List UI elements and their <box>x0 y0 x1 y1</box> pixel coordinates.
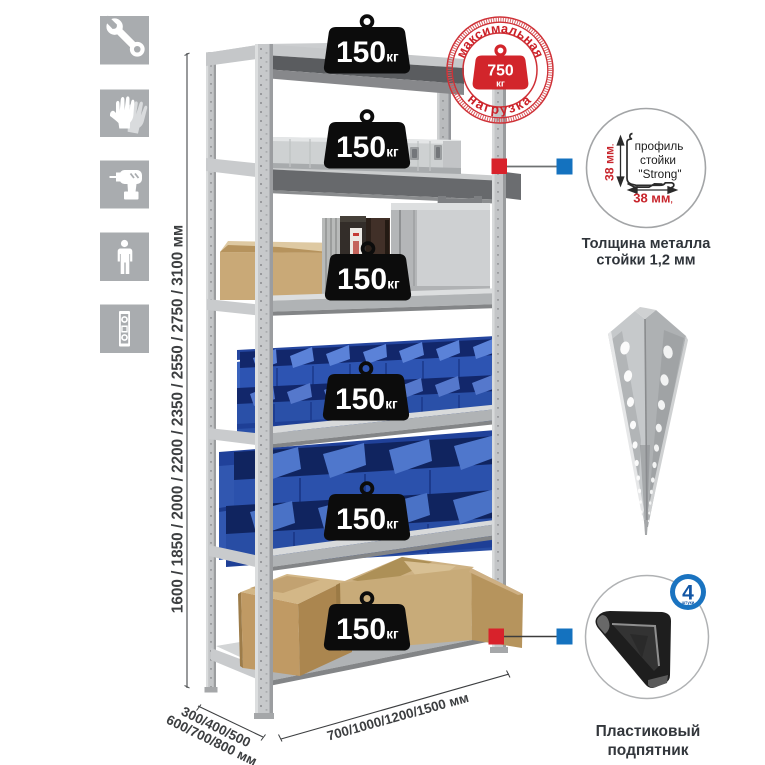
svg-text:штуки: штуки <box>682 600 695 605</box>
svg-text:подпятник: подпятник <box>607 742 688 759</box>
svg-text:кг: кг <box>496 79 505 90</box>
svg-text:700/1000/1200/1500 мм: 700/1000/1200/1500 мм <box>325 690 470 744</box>
svg-text:стойки 1,2 мм: стойки 1,2 мм <box>596 253 695 269</box>
svg-text:профиль: профиль <box>635 139 684 153</box>
svg-text:38 мм,: 38 мм, <box>633 191 673 206</box>
svg-text:"Strong": "Strong" <box>638 167 681 181</box>
svg-text:Пластиковый: Пластиковый <box>596 723 701 740</box>
svg-text:стойки: стойки <box>640 153 676 167</box>
svg-text:1600 / 1850 / 2000 / 2200 / 23: 1600 / 1850 / 2000 / 2200 / 2350 / 2550 … <box>170 225 187 613</box>
svg-text:750: 750 <box>487 63 514 80</box>
svg-text:38 мм.: 38 мм. <box>603 144 617 181</box>
svg-text:Толщина металла: Толщина металла <box>582 236 712 252</box>
